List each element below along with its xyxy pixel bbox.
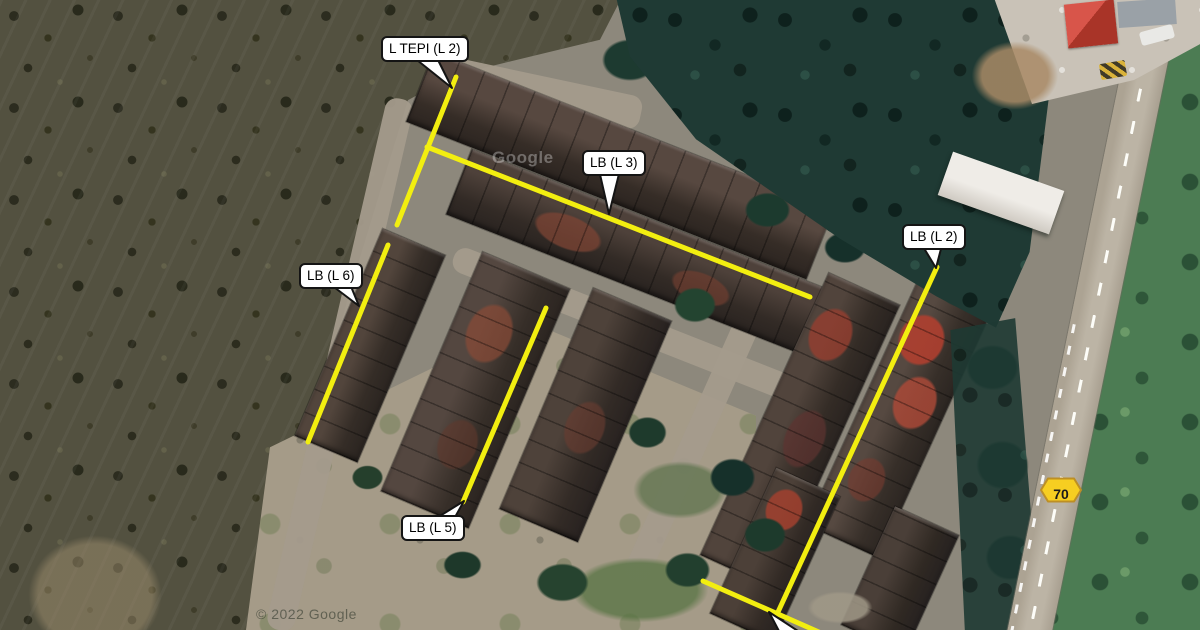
callout-label: L TEPI (L 2)	[389, 41, 461, 56]
callout-label: LB (L 5)	[409, 520, 457, 535]
callout-label: LB (L 2)	[910, 229, 958, 244]
survey-line	[703, 581, 821, 630]
callout-lb-l2: LB (L 2)	[902, 224, 966, 250]
callout-lb-l6: LB (L 6)	[299, 263, 363, 289]
callout-lb-l3: LB (L 3)	[582, 150, 646, 176]
route-shield-label: 70	[1053, 486, 1069, 502]
survey-line	[778, 267, 937, 612]
satellite-map-canvas: Google © 2022 Google 70 L TEPI (L 2) LB …	[0, 0, 1200, 630]
callout-lb-l5: LB (L 5)	[401, 515, 465, 541]
callout-tail	[599, 170, 620, 214]
survey-line	[463, 308, 546, 502]
annotation-overlay: 70	[0, 0, 1200, 630]
route-shield-70: 70	[1041, 479, 1081, 503]
callout-label: LB (L 6)	[307, 268, 355, 283]
survey-line	[397, 77, 456, 225]
callout-label: LB (L 3)	[590, 155, 638, 170]
callout-l-tepi-l2: L TEPI (L 2)	[381, 36, 469, 62]
